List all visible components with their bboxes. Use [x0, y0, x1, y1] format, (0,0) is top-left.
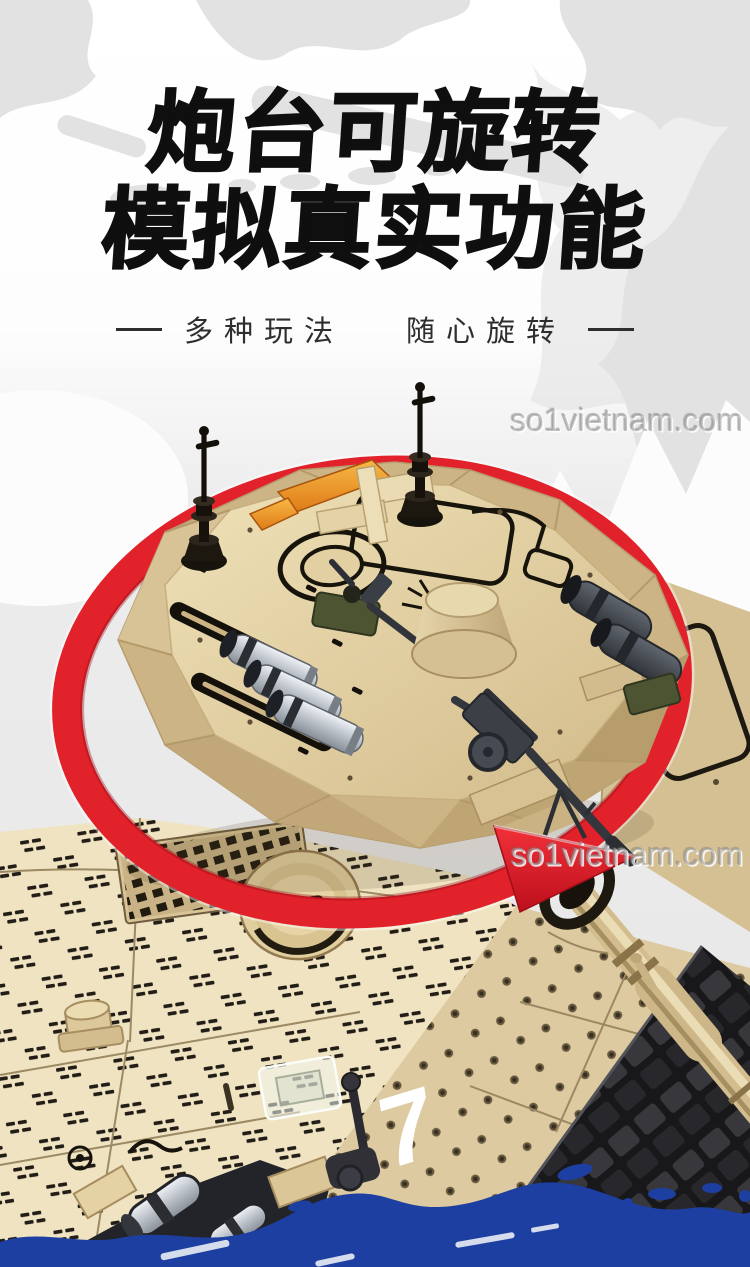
- subtitle: 多种玩法 随心旋转: [0, 308, 750, 350]
- headline-line-1: 炮台可旋转: [0, 84, 750, 181]
- product-banner: 7: [0, 0, 750, 1267]
- subtitle-text-right: 随心旋转: [406, 308, 566, 350]
- subtitle-text-left: 多种玩法: [184, 308, 344, 350]
- subtitle-dash-right: [588, 328, 634, 331]
- headline-line-2: 模拟真实功能: [0, 181, 750, 278]
- watermark-middle: so1vietnam.com: [510, 836, 750, 873]
- watermark-top: so1vietnam.com: [510, 402, 750, 439]
- subtitle-dash-left: [116, 328, 162, 331]
